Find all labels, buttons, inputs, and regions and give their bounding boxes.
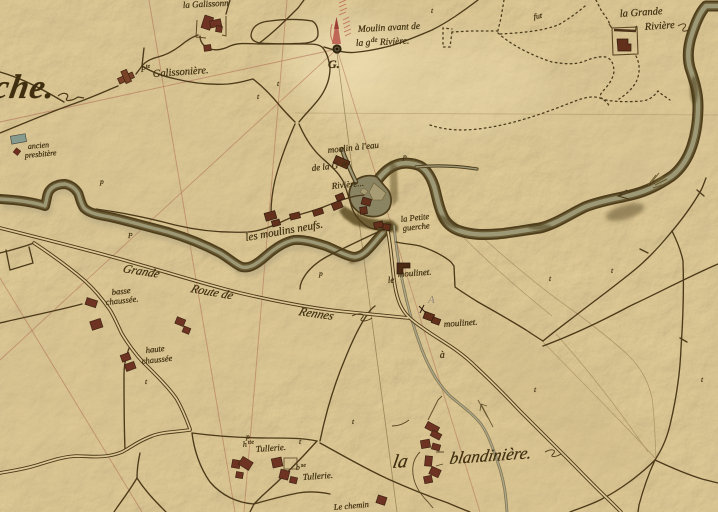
svg-text:A: A [427,294,435,306]
svg-text:Rivière: Rivière [643,20,675,33]
svg-text:Tullerie.: Tullerie. [302,470,333,482]
svg-text:te: te [146,64,151,70]
svg-text:de: de [371,36,378,44]
svg-text:la g: la g [356,38,371,49]
svg-text:P: P [127,231,133,240]
svg-text:p: p [245,432,250,441]
svg-text:p: p [318,269,323,278]
svg-text:che.: che. [0,68,59,106]
svg-text:h: h [243,440,248,449]
svg-text:b: b [296,463,301,472]
svg-text:p: p [99,177,104,186]
svg-text:à: à [439,350,445,361]
svg-text:G.: G. [328,57,340,71]
svg-text:le: le [387,275,394,285]
svg-text:p: p [402,152,407,161]
svg-text:Tullerie.: Tullerie. [255,442,286,454]
svg-text:de: de [341,160,348,168]
svg-text:Rivière.: Rivière. [379,36,410,48]
svg-text:se: se [301,463,307,469]
